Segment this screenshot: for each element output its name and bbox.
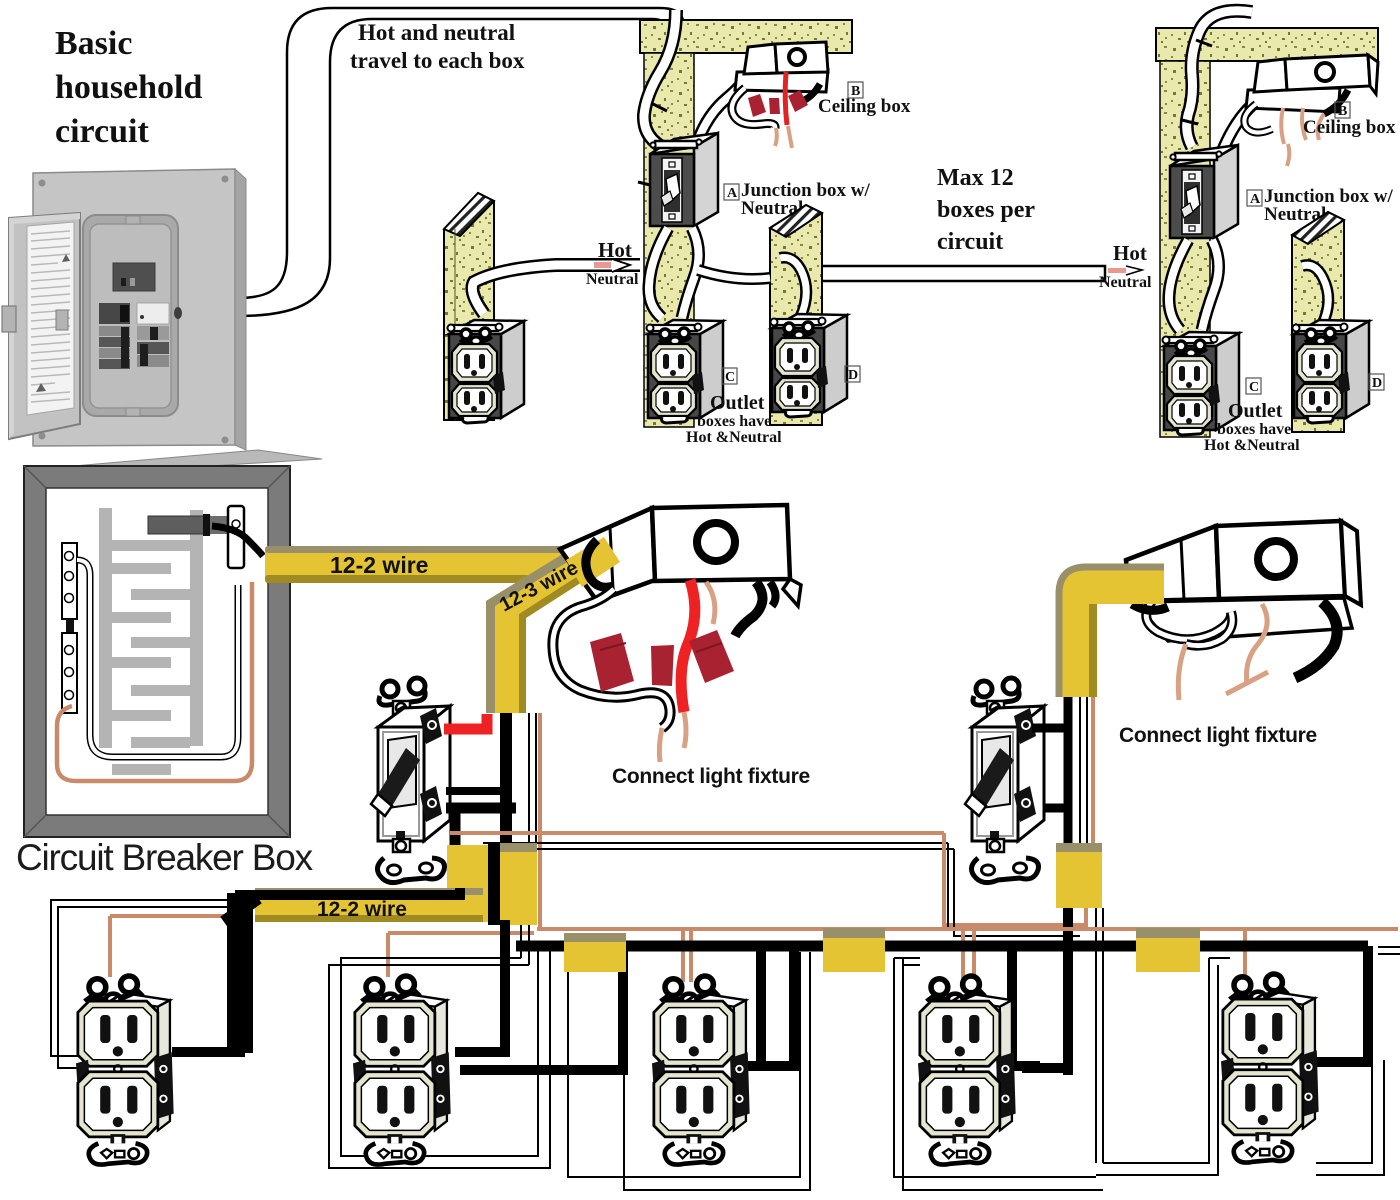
svg-text:C: C: [725, 370, 735, 385]
svg-text:A: A: [1250, 192, 1261, 207]
svg-text:boxes per: boxes per: [937, 197, 1035, 223]
svg-text:Hot and neutral: Hot and neutral: [358, 20, 515, 45]
svg-text:boxes have: boxes have: [697, 413, 771, 430]
svg-text:12-2 wire: 12-2 wire: [317, 898, 407, 921]
svg-text:Outlet: Outlet: [710, 392, 765, 414]
svg-text:Neutral: Neutral: [1099, 274, 1152, 291]
svg-text:circuit: circuit: [55, 113, 149, 150]
svg-text:Circuit Breaker Box: Circuit Breaker Box: [16, 837, 314, 878]
svg-text:travel to each box: travel to each box: [350, 48, 525, 73]
svg-text:D: D: [1372, 376, 1382, 391]
svg-text:12-2 wire: 12-2 wire: [330, 552, 428, 578]
svg-text:Connect light fixture: Connect light fixture: [612, 765, 810, 788]
svg-text:household: household: [55, 69, 202, 106]
svg-text:Hot: Hot: [1113, 241, 1147, 265]
svg-text:Neutral: Neutral: [586, 271, 639, 288]
svg-text:Connect light fixture: Connect light fixture: [1119, 724, 1317, 747]
svg-text:D: D: [848, 368, 858, 383]
svg-text:C: C: [1249, 380, 1259, 395]
svg-text:Max 12: Max 12: [937, 165, 1014, 191]
svg-text:A: A: [727, 186, 738, 201]
svg-text:Outlet: Outlet: [1228, 400, 1283, 422]
svg-text:circuit: circuit: [937, 229, 1003, 255]
svg-text:Ceiling box: Ceiling box: [818, 96, 911, 117]
svg-text:Basic: Basic: [55, 25, 132, 62]
svg-text:Hot &Neutral: Hot &Neutral: [686, 429, 782, 446]
svg-text:Hot &Neutral: Hot &Neutral: [1204, 437, 1300, 454]
svg-text:Ceiling box: Ceiling box: [1303, 117, 1396, 138]
svg-text:boxes have: boxes have: [1217, 421, 1291, 438]
